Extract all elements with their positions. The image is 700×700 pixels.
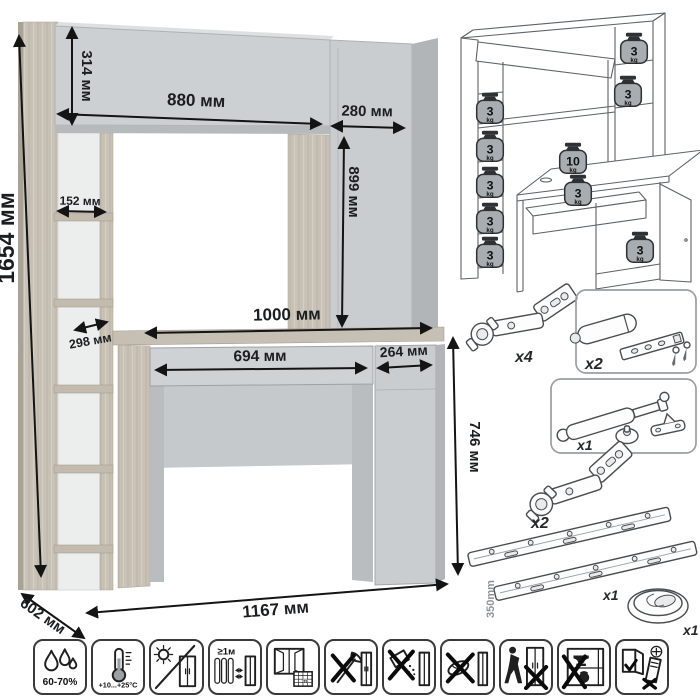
- weight-badge: 3kg: [477, 167, 504, 198]
- hardware-qty-label: x1: [602, 587, 619, 603]
- hardware-qty-label: x2: [530, 515, 549, 532]
- dimension-total-width: 1167 мм: [87, 584, 447, 622]
- no-powder-icon: [386, 644, 432, 690]
- weight-badge: 3kg: [477, 93, 504, 124]
- care-icon-humidity: 60-70%: [33, 639, 87, 695]
- svg-text:kg: kg: [486, 155, 493, 162]
- product-dimension-sheet: 1654 мм 314 мм 880 мм 280 мм 152 мм 899 …: [0, 0, 700, 700]
- hardware-qty-label: x1: [576, 437, 593, 453]
- svg-text:kg: kg: [624, 100, 631, 107]
- weight-badge: 3kg: [621, 33, 648, 64]
- left-column-side-panel: [23, 22, 58, 590]
- knee-space-left-wall: [150, 386, 164, 582]
- dim-label: 152 мм: [59, 194, 100, 209]
- hardware-qty-label: x1: [682, 622, 699, 638]
- check-doors-icon: [619, 644, 665, 690]
- desk-right-side: [436, 344, 445, 583]
- hardware-qty-label: x4: [514, 349, 533, 366]
- weight-badge: 3kg: [477, 131, 504, 162]
- care-icon-no-sharp-objects: [324, 639, 378, 695]
- no-wet-cloth-icon: [444, 644, 490, 690]
- no-heavy-items-icon: [561, 644, 607, 690]
- thermometer-icon: +10...+25°C: [95, 644, 141, 690]
- svg-text:kg: kg: [630, 57, 637, 64]
- care-icon-no-abrasives: [382, 639, 436, 695]
- dimension-depth: 602 мм: [17, 594, 84, 638]
- knee-space-right-wall: [352, 384, 373, 582]
- slide-length-label: 350mm: [485, 580, 497, 618]
- hutch-flip-door: [55, 26, 330, 126]
- weight-badge: 10kg: [560, 143, 587, 174]
- desk-back-panel: [150, 384, 373, 468]
- cable-grommet-icon: x1: [628, 589, 699, 638]
- hutch-bottom-board: [55, 125, 330, 134]
- gas-lift-icon: x1: [551, 379, 696, 453]
- cabinet-door: [375, 345, 436, 585]
- temperature-value: +10...+25°C: [99, 681, 139, 690]
- care-icon-no-overloading: [557, 639, 611, 695]
- dim-label: 264 мм: [379, 342, 428, 360]
- dim-label: 880 мм: [167, 90, 226, 111]
- humidity-value: 60-70%: [43, 677, 78, 688]
- humidity-icon: 60-70%: [37, 644, 83, 690]
- dim-label: 694 мм: [233, 348, 286, 365]
- hardware-qty-label: x2: [584, 356, 603, 373]
- care-icon-no-wet-cleaning: [440, 639, 494, 695]
- weight-badge: 3kg: [615, 76, 642, 107]
- hinge-icon-top: x4: [457, 282, 584, 366]
- dim-label: 280 мм: [341, 103, 393, 121]
- sun-cabinet-icon: [153, 644, 199, 690]
- svg-text:kg: kg: [486, 191, 493, 198]
- care-icon-ventilation: 21: [266, 639, 320, 695]
- nook-right-upright: [288, 134, 330, 333]
- no-dragging-icon: [503, 644, 549, 690]
- weight-badge: 3kg: [627, 232, 654, 263]
- dim-label: 314 мм: [78, 50, 95, 101]
- dim-label: 1654 мм: [0, 192, 19, 284]
- distance-value: ≥1м: [217, 647, 235, 658]
- left-column-inner-upright: [100, 133, 113, 590]
- care-icon-row: 60-70% +10...+25°C ≥1м: [33, 639, 669, 695]
- dim-label: 1167 мм: [242, 597, 310, 621]
- care-icon-temperature: +10...+25°C: [91, 639, 145, 695]
- dim-label: 899 мм: [345, 166, 362, 217]
- damper-kit-icon: x2: [568, 290, 696, 373]
- dim-label: 1000 мм: [253, 304, 321, 324]
- weight-badge: 3kg: [477, 237, 504, 268]
- svg-text:kg: kg: [569, 167, 576, 174]
- dimension-drawing: 1654 мм 314 мм 880 мм 280 мм 152 мм 899 …: [0, 0, 480, 645]
- care-icon-heat-distance: ≥1м: [208, 639, 262, 695]
- calendar-day: 21: [303, 679, 307, 683]
- load-capacity-diagram: 3kg 3kg 3kg 3kg 3kg 3kg 3kg 10kg 3kg 3kg: [428, 2, 700, 302]
- dim-label: 602 мм: [17, 595, 69, 638]
- svg-text:kg: kg: [486, 261, 493, 268]
- care-icon-no-direct-sunlight: [149, 639, 203, 695]
- hardware-panel: x4 x2: [455, 282, 700, 638]
- care-icon-no-dragging: [499, 639, 553, 695]
- no-axe-icon: [328, 644, 374, 690]
- svg-text:kg: kg: [486, 117, 493, 124]
- care-icon-door-alignment: [615, 639, 669, 695]
- window-calendar-icon: 21: [270, 644, 316, 690]
- svg-text:kg: kg: [486, 227, 493, 234]
- radiator-distance-icon: ≥1м: [212, 644, 258, 690]
- svg-text:kg: kg: [636, 256, 643, 263]
- weight-badge: 3kg: [477, 203, 504, 234]
- svg-text:kg: kg: [574, 199, 581, 206]
- desk-left-side: [118, 345, 150, 588]
